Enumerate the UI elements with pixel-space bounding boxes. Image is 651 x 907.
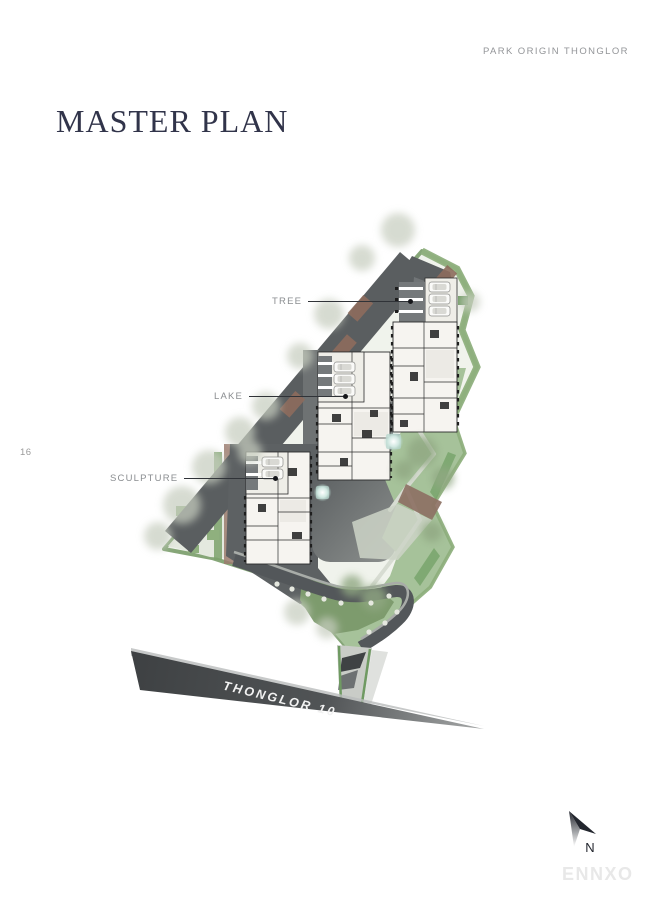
callout-lake: LAKE: [214, 391, 348, 402]
callout-sculpture: SCULPTURE: [110, 473, 278, 484]
street-surface: [131, 651, 484, 729]
street: THONGLOR 10: [131, 648, 484, 729]
callout-label: LAKE: [214, 391, 243, 402]
leader-dot: [343, 394, 348, 399]
callout-label: SCULPTURE: [110, 473, 178, 484]
leader-dot: [273, 476, 278, 481]
callout-label: TREE: [272, 296, 302, 307]
leader-line: [308, 301, 409, 302]
callout-tree: TREE: [272, 296, 413, 307]
north-arrow: N: [569, 811, 596, 855]
brochure-page: { "header": { "brand": "PARK ORIGIN THON…: [0, 0, 651, 907]
leader-line: [249, 396, 344, 397]
leader-dot: [408, 299, 413, 304]
leader-line: [184, 478, 274, 479]
watermark: ENNXO: [562, 864, 634, 885]
master-plan-illustration: THONGLOR 10 N: [0, 0, 651, 907]
compass-label: N: [585, 840, 594, 855]
